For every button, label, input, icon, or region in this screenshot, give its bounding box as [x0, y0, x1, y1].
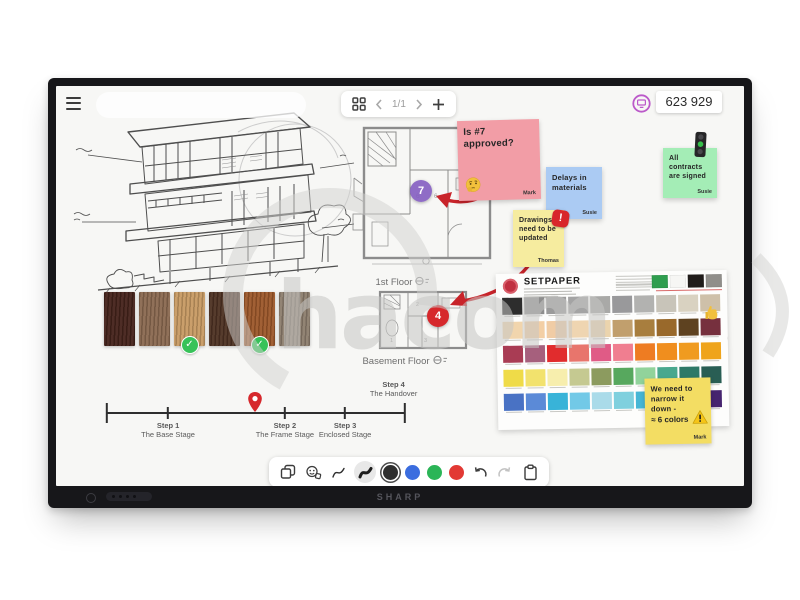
project-timeline[interactable]: Step 1The Base StageStep 2The Frame Stag…: [101, 379, 416, 451]
next-page-button[interactable]: [415, 99, 423, 110]
approved-check-icon: ✓: [181, 336, 199, 354]
setpaper-title: SETPAPER: [524, 276, 581, 288]
timeline-tick: [284, 407, 286, 419]
palette-header-swatches: [652, 274, 722, 288]
whiteboard-canvas[interactable]: ✓✓ 6 6 1: [56, 86, 744, 486]
color-swatch: [701, 342, 721, 359]
sticky-text: Is #7 approved?: [463, 125, 534, 152]
chevron-right-icon: [415, 99, 423, 110]
color-swatch: [548, 393, 568, 410]
sensor-strip: [106, 492, 152, 501]
plus-icon: [432, 98, 445, 111]
highlight-patch: [96, 92, 306, 118]
color-swatch: [526, 393, 546, 410]
color-swatch: [634, 295, 654, 312]
page-indicator: 1/1: [392, 99, 406, 110]
color-swatch: [679, 342, 699, 359]
warning-icon: [692, 409, 708, 424]
color-swatch: [524, 321, 544, 338]
wood-sample[interactable]: [139, 292, 170, 346]
timeline-tick: [167, 407, 169, 419]
pen-colors: [383, 465, 464, 480]
rotate-icon[interactable]: [433, 355, 448, 365]
session-code: 623 929: [656, 91, 722, 113]
color-swatch: [591, 344, 611, 361]
color-swatch: [613, 344, 633, 361]
traffic-light-icon: [693, 131, 707, 159]
thin-pen-button[interactable]: [329, 461, 347, 483]
color-swatch: [678, 294, 698, 311]
pen-color-1[interactable]: [405, 465, 420, 480]
prev-page-button[interactable]: [375, 99, 383, 110]
color-swatch: [503, 346, 523, 363]
copy-icon: [280, 464, 296, 480]
color-swatch: [656, 295, 676, 312]
setpaper-logo: [503, 279, 518, 294]
color-swatch: [525, 369, 545, 386]
duplicate-button[interactable]: [279, 461, 297, 483]
sticky-author: Mark: [694, 435, 707, 441]
wood-sample[interactable]: [279, 292, 310, 346]
sticker-tool-button[interactable]: [304, 461, 322, 483]
sharp-display: ✓✓ 6 6 1: [48, 78, 752, 508]
color-swatch: [613, 368, 633, 385]
share-session-button[interactable]: [632, 94, 651, 113]
sticky-note-contracts[interactable]: All contracts are signed Susie: [663, 148, 717, 198]
sticky-note-narrow[interactable]: We need to narrow it down - ≈ 6 colors M…: [644, 377, 711, 444]
page-navigator: 1/1: [341, 91, 456, 117]
wood-sample[interactable]: [209, 292, 240, 346]
exclamation-badge-icon: !: [551, 209, 570, 228]
color-swatch: [547, 345, 567, 362]
timeline-step: Step 3Enclosed Stage: [319, 421, 372, 439]
wood-sample[interactable]: ✓: [174, 292, 205, 346]
plan-marker-7[interactable]: 7: [410, 180, 432, 202]
color-swatch: [591, 368, 611, 385]
color-swatch: [568, 320, 588, 337]
color-swatch: [656, 319, 676, 336]
wood-samples[interactable]: ✓✓: [104, 292, 310, 346]
approved-check-icon: ✓: [251, 336, 269, 354]
color-swatch: [547, 369, 567, 386]
drawing-toolbar: [269, 457, 549, 486]
color-swatch: [570, 392, 590, 409]
screen-share-icon: [632, 94, 651, 113]
color-swatch: [524, 297, 544, 314]
color-swatch: [504, 394, 524, 411]
sticky-author: Mark: [523, 190, 536, 196]
wood-sample[interactable]: [104, 292, 135, 346]
pen-color-2[interactable]: [427, 465, 442, 480]
color-swatch: [634, 319, 654, 336]
color-swatch: [590, 320, 610, 337]
timeline-step: Step 2The Frame Stage: [256, 421, 314, 439]
svg-text:1: 1: [390, 338, 393, 344]
basement-floor-plan[interactable]: 1 2 3: [374, 286, 472, 354]
header-swatch: [670, 275, 686, 288]
timeline-tick: [404, 403, 406, 423]
wood-sample[interactable]: ✓: [244, 292, 275, 346]
chevron-left-icon: [375, 99, 383, 110]
timeline-tick: [106, 403, 108, 423]
undo-button[interactable]: [471, 461, 489, 483]
pen-color-0[interactable]: [383, 465, 398, 480]
undo-icon: [472, 465, 488, 479]
location-pin-icon[interactable]: [247, 391, 263, 413]
add-page-button[interactable]: [432, 98, 445, 111]
house-sketch-image[interactable]: [70, 100, 362, 302]
display-bezel: SHARP: [48, 486, 752, 508]
color-swatch: [546, 321, 566, 338]
sticker-icon: [305, 464, 322, 481]
thumbs-up-emoji: [703, 304, 720, 321]
header-swatch: [652, 275, 668, 288]
color-swatch: [546, 297, 566, 314]
timeline-tick: [344, 407, 346, 419]
redo-icon: [497, 465, 513, 479]
sticky-author: Susie: [582, 210, 597, 216]
sharp-logo: SHARP: [48, 486, 752, 508]
thick-stroke-icon: [358, 465, 373, 480]
svg-text:2: 2: [416, 302, 419, 308]
color-swatch: [635, 343, 655, 360]
timeline-step: Step 4The Handover: [370, 380, 418, 398]
redo-button[interactable]: [496, 461, 514, 483]
color-swatch: [569, 344, 589, 361]
sticky-note-approved[interactable]: Is #7 approved? Mark: [457, 119, 541, 201]
sticky-text: Delays in materials: [552, 173, 596, 193]
sticky-author: Thomas: [538, 258, 559, 264]
color-swatch: [612, 296, 632, 313]
plan-marker-4[interactable]: 4: [427, 305, 449, 327]
header-swatch: [688, 274, 704, 287]
clipboard-icon: [523, 464, 538, 481]
color-swatch: [502, 298, 522, 315]
menu-button[interactable]: [66, 97, 86, 113]
color-swatch: [569, 368, 589, 385]
header-swatch: [706, 274, 722, 287]
svg-text:3: 3: [424, 338, 427, 344]
paste-button[interactable]: [521, 461, 539, 483]
thick-pen-button[interactable]: [354, 461, 376, 483]
svg-text:6: 6: [434, 193, 438, 200]
color-swatch: [614, 392, 634, 409]
thinking-face-emoji: [464, 176, 481, 193]
color-swatch: [678, 318, 698, 335]
power-button[interactable]: [86, 493, 96, 503]
rotate-icon[interactable]: [415, 276, 430, 286]
color-swatch: [657, 343, 677, 360]
grid-icon: [352, 97, 366, 111]
color-swatch: [525, 345, 545, 362]
basement-floor-label: Basement Floor: [330, 355, 480, 367]
color-swatch: [592, 392, 612, 409]
pen-color-3[interactable]: [449, 465, 464, 480]
color-swatch: [502, 322, 522, 339]
setpaper-red-caption: [656, 289, 722, 291]
thin-stroke-icon: [331, 465, 346, 480]
timeline-step: Step 1The Base Stage: [141, 421, 195, 439]
color-swatch: [612, 320, 632, 337]
color-swatch: [503, 370, 523, 387]
product-page-background: ✓✓ 6 6 1: [0, 0, 800, 600]
pages-overview-button[interactable]: [352, 97, 366, 111]
sticky-author: Susie: [697, 189, 712, 195]
color-swatch: [568, 296, 588, 313]
color-swatch: [590, 296, 610, 313]
